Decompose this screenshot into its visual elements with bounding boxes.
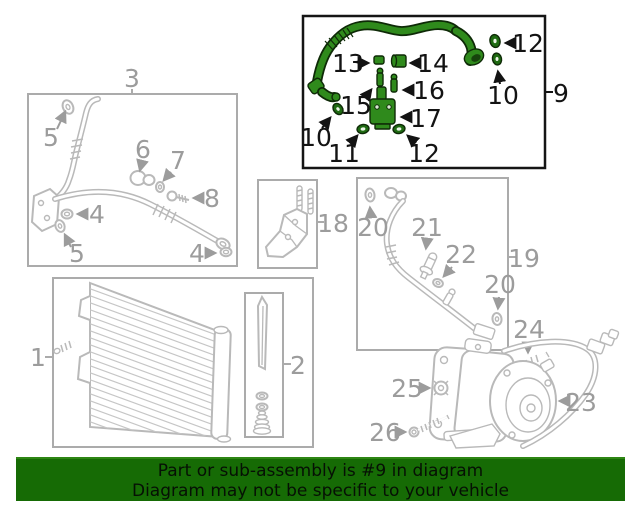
drier-spring <box>254 428 271 434</box>
compressor-pulley-hub <box>527 404 535 412</box>
part-16-valve <box>391 79 397 92</box>
diagram-note-banner: Part or sub-assembly is #9 in diagram Di… <box>16 457 625 501</box>
box1-label: 1 <box>30 343 46 372</box>
callout-17: 17 <box>410 104 442 133</box>
part-17-expansion-valve <box>370 99 395 124</box>
callout-12a: 12 <box>512 29 544 58</box>
part-13-cap <box>374 56 384 64</box>
part-15-valve <box>377 73 383 86</box>
callout-8: 8 <box>204 184 220 213</box>
box18-label: 18 <box>317 209 349 238</box>
box1-condenser-group: 1 2 <box>30 278 313 455</box>
callout-5a: 5 <box>43 123 59 152</box>
callout-20a: 20 <box>357 213 389 242</box>
box19-label: 19 <box>508 244 540 273</box>
box2-label: 2 <box>290 351 306 380</box>
box9-highlighted-subassembly-group: 9 13 14 15 16 <box>300 16 569 168</box>
callout-23: 23 <box>565 388 597 417</box>
callout-14: 14 <box>417 49 449 78</box>
callout-25: 25 <box>391 374 423 403</box>
callout-26: 26 <box>369 418 401 447</box>
callout-7: 7 <box>170 146 186 175</box>
receiver-drier-tank <box>211 329 231 439</box>
callout-11: 11 <box>328 139 360 168</box>
callout-22: 22 <box>445 240 477 269</box>
box18-bracket-group: 18 <box>258 180 349 268</box>
callout-5b: 5 <box>69 239 85 268</box>
bolt-8 <box>168 192 177 201</box>
condenser-bracket-lower <box>78 352 90 383</box>
banner-line-2: Diagram may not be specific to your vehi… <box>16 481 625 501</box>
callout-13: 13 <box>332 49 364 78</box>
parts-diagram: 3 5 6 7 8 <box>0 0 640 455</box>
callout-12b: 12 <box>408 139 440 168</box>
box9-label: 9 <box>553 79 569 108</box>
callout-6: 6 <box>135 135 151 164</box>
callout-16: 16 <box>413 76 445 105</box>
box3-hose-assembly-group: 3 5 6 7 8 <box>28 64 237 268</box>
callout-4a: 4 <box>89 200 105 229</box>
parts-diagram-page: 3 5 6 7 8 <box>0 0 640 512</box>
callout-20b: 20 <box>484 270 516 299</box>
box3-label: 3 <box>124 64 140 93</box>
callout-4b: 4 <box>189 239 205 268</box>
callout-21: 21 <box>411 213 443 242</box>
callout-10a: 10 <box>487 81 519 110</box>
condenser-bracket-upper <box>79 296 90 320</box>
banner-line-1: Part or sub-assembly is #9 in diagram <box>16 461 625 481</box>
